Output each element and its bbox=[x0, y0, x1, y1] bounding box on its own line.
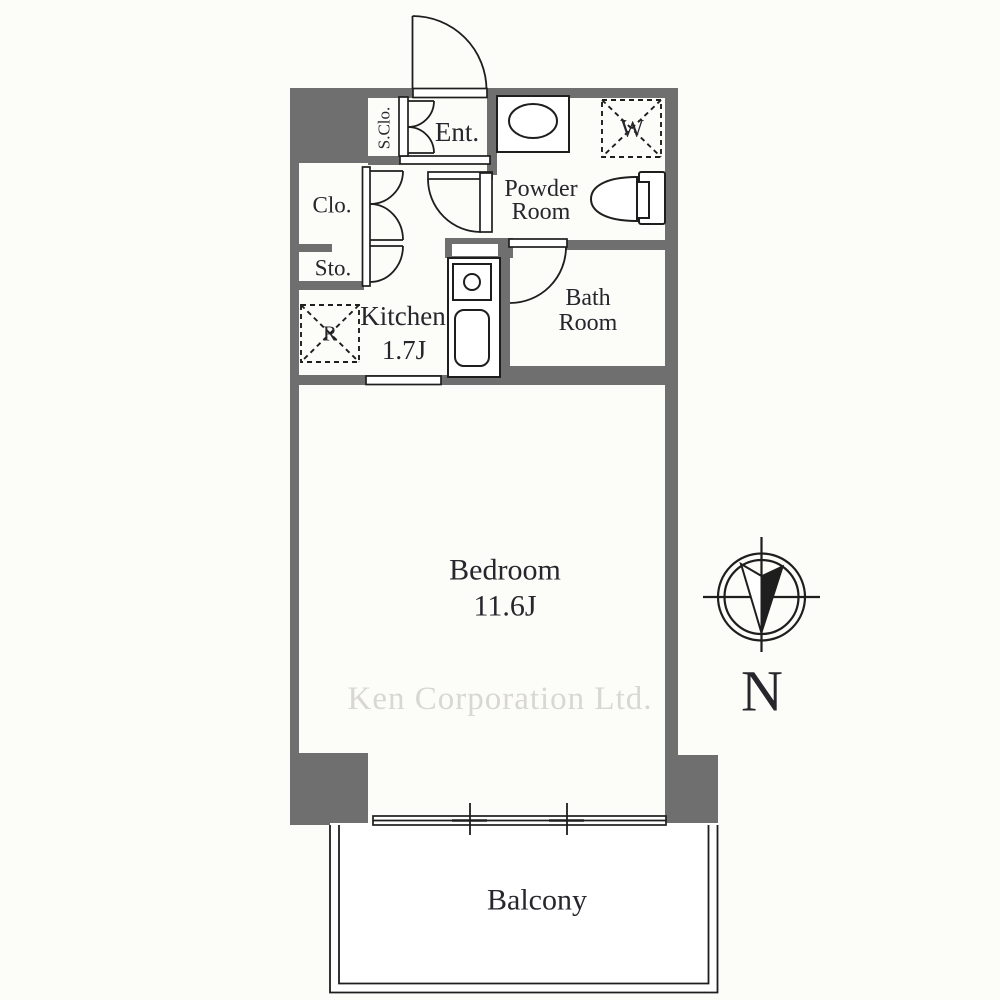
refrigerator-label: R bbox=[323, 323, 337, 344]
bath-room-label: Bath Room bbox=[559, 286, 618, 336]
storage-label: Sto. bbox=[315, 256, 351, 279]
bedroom-label: Bedroom bbox=[449, 556, 561, 587]
balcony-label: Balcony bbox=[487, 886, 587, 917]
powder-room-label-line2: Room bbox=[504, 201, 577, 224]
bath-room-label-line1: Bath bbox=[559, 286, 618, 311]
floorplan-canvas: S.Clo. Ent. Clo. Sto. Kitchen 1.7J R W P… bbox=[0, 0, 1000, 1000]
bath-room-label-line2: Room bbox=[559, 311, 618, 336]
bedroom-area-label: 11.6J bbox=[473, 592, 536, 623]
powder-room-label-line1: Powder bbox=[504, 178, 577, 201]
kitchen-label: Kitchen bbox=[360, 303, 445, 331]
compass-north-label: N bbox=[741, 661, 783, 720]
powder-room-label: Powder Room bbox=[504, 178, 577, 224]
watermark: Ken Corporation Ltd. bbox=[347, 683, 652, 717]
closet-label: Clo. bbox=[313, 193, 352, 216]
kitchen-area-label: 1.7J bbox=[382, 337, 426, 365]
entrance-label: Ent. bbox=[435, 119, 479, 147]
shoe-closet-label: S.Clo. bbox=[375, 107, 392, 150]
label-layer: S.Clo. Ent. Clo. Sto. Kitchen 1.7J R W P… bbox=[0, 0, 1000, 1000]
washer-label: W bbox=[620, 116, 644, 142]
